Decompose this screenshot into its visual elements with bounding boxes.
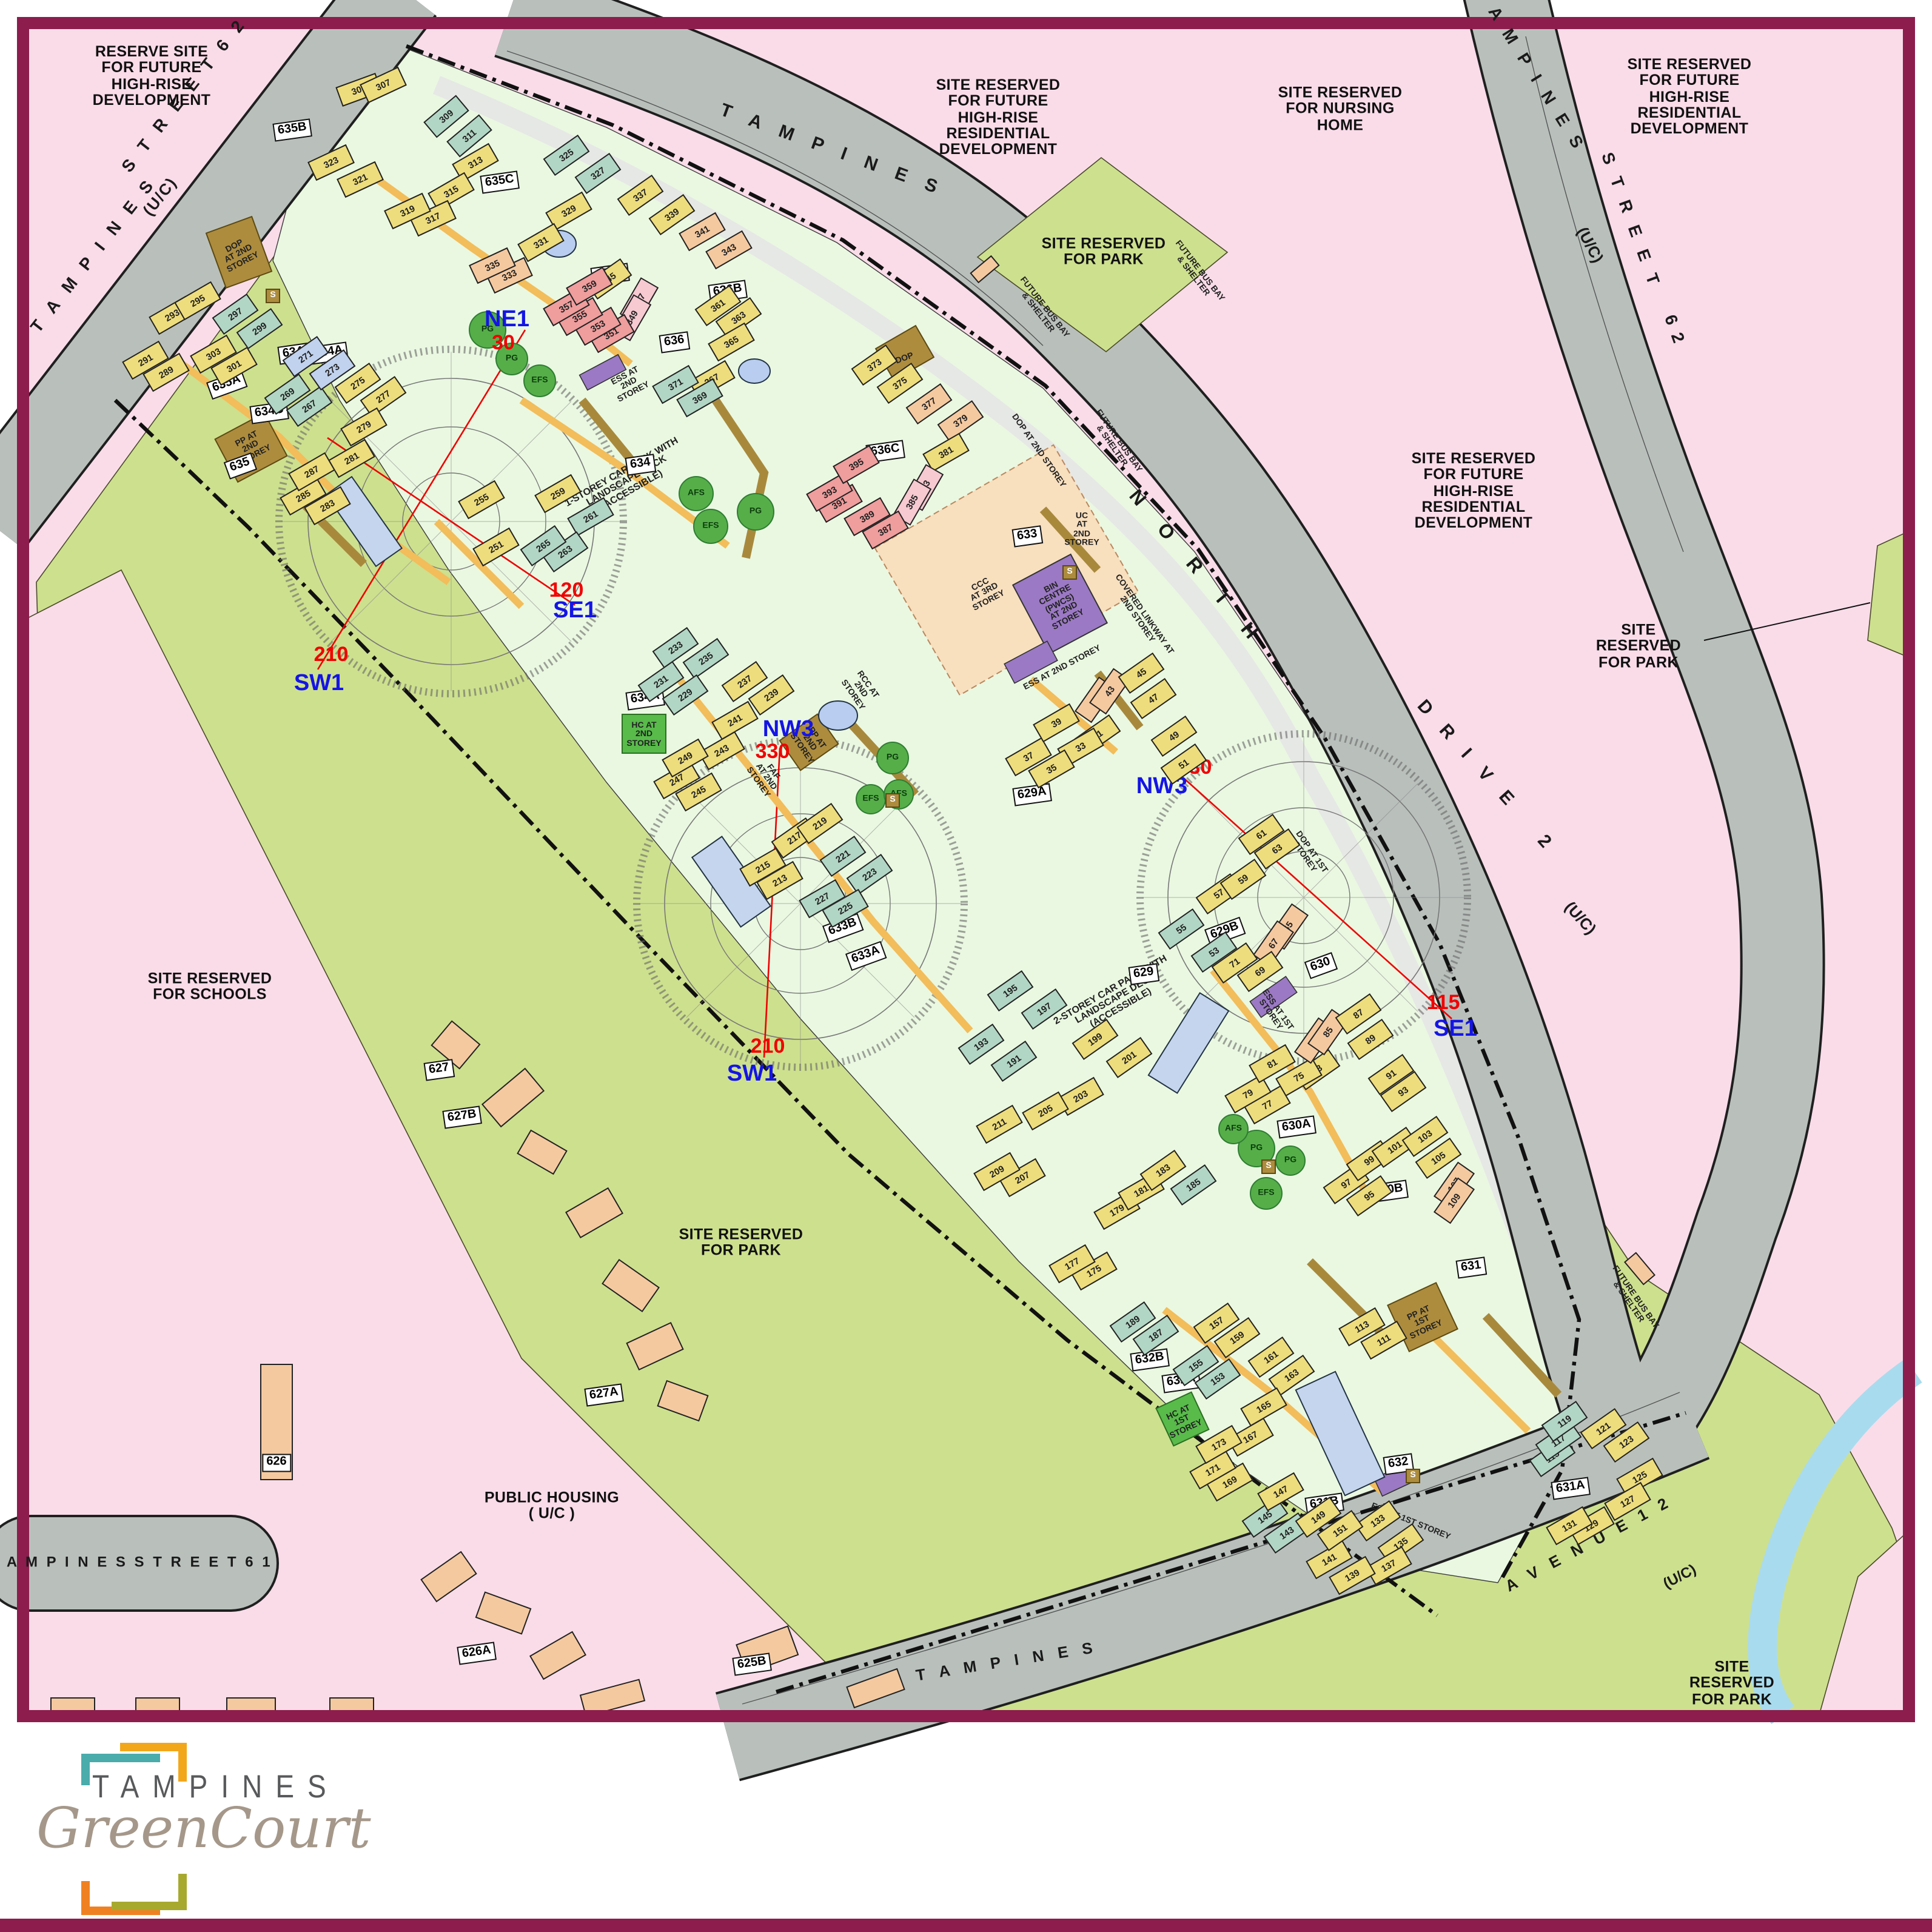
site-text: SITE RESERVED FOR NURSING HOME	[1278, 85, 1403, 133]
s-label: S	[1062, 565, 1077, 580]
site-text: RESERVE SITE FOR FUTURE HIGH-RISE DEVELO…	[93, 44, 211, 109]
site-text: SITE RESERVED FOR PARK	[1689, 1659, 1774, 1708]
site-text: SITE RESERVED FOR FUTURE HIGH-RISE RESID…	[1412, 451, 1536, 532]
park-label: EFS	[1258, 1189, 1274, 1198]
park-label: PG	[887, 754, 899, 763]
site-text: SITE RESERVED FOR FUTURE HIGH-RISE RESID…	[1628, 57, 1752, 138]
park-label: PG	[750, 508, 762, 517]
site-text: SITE RESERVED FOR PARK	[679, 1227, 803, 1259]
road-label: T A M P I N E S S T R E E T 6 1	[0, 1554, 273, 1569]
site-plan-page: T A M P I N E SS T R E E T 6 2(U/C)T A M…	[0, 0, 1932, 1932]
park-label: EFS	[531, 377, 548, 386]
marker: 115	[1427, 992, 1460, 1014]
site-text: SITE RESERVED FOR SCHOOLS	[148, 971, 272, 1004]
park-label: PG	[1250, 1144, 1263, 1153]
site-text: SITE RESERVED FOR PARK	[1596, 622, 1681, 671]
marker: 330	[756, 741, 790, 763]
marker: 210	[751, 1036, 785, 1058]
site-text: SITE RESERVED FOR FUTURE HIGH-RISE RESID…	[936, 78, 1061, 158]
annotation: UC AT 2ND STOREY	[1064, 512, 1099, 548]
s-label: S	[266, 289, 280, 303]
s-label: S	[885, 793, 900, 808]
marker: SW1	[294, 672, 344, 696]
park-label: EFS	[862, 795, 879, 804]
park-label: AFS	[1225, 1125, 1242, 1134]
marker: 210	[314, 644, 349, 666]
logo-bracket-olive	[112, 1874, 187, 1910]
logo-line2: GreenCourt	[36, 1795, 371, 1860]
park-label: EFS	[702, 522, 719, 531]
marker: NW3	[763, 718, 814, 742]
marker: SE1	[1434, 1018, 1477, 1042]
annotation: HC AT 2ND STOREY	[626, 722, 661, 748]
site-map	[0, 0, 1932, 1932]
marker: 30	[492, 332, 515, 354]
bottom-bar	[0, 1919, 1932, 1932]
park-label: PG	[1284, 1156, 1296, 1166]
s-label: S	[1261, 1159, 1276, 1174]
site-text: PUBLIC HOUSING ( U/C )	[485, 1491, 619, 1523]
marker: SW1	[727, 1062, 777, 1087]
park-label: AFS	[688, 489, 705, 498]
park-label: PG	[506, 355, 518, 364]
logo: TAMPINES GreenCourt	[36, 1727, 437, 1921]
marker: SE1	[553, 599, 597, 623]
site-text: SITE RESERVED FOR PARK	[1042, 236, 1166, 269]
s-label: S	[1406, 1469, 1420, 1483]
block-label: 626	[262, 1454, 290, 1472]
marker: NE1	[485, 308, 529, 332]
